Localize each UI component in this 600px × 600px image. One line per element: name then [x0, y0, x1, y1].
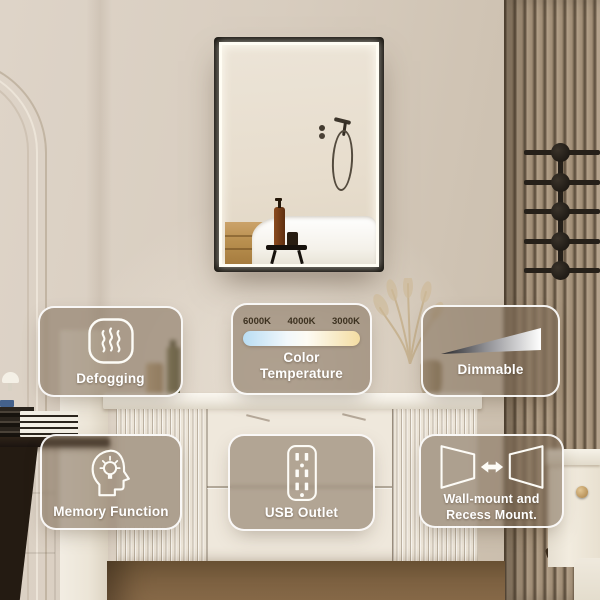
shower-mixer-knob — [319, 133, 325, 139]
towel-rack-knob — [551, 261, 570, 280]
brightness-wedge-icon — [441, 325, 541, 357]
tick-4000k: 4000K — [288, 316, 316, 327]
stool — [266, 245, 307, 250]
shower-hose-loop — [330, 129, 354, 191]
badge-label-line2: Recess Mount. — [446, 508, 537, 522]
towel-rack-knob — [551, 143, 570, 162]
blue-book — [0, 400, 14, 407]
shower-bracket — [334, 117, 351, 125]
soap-bottle — [274, 207, 285, 246]
product-scene: Defogging 6000K 4000K 3000K Color Temper… — [0, 0, 600, 600]
cabinet-seam — [392, 409, 394, 563]
tick-3000k: 3000K — [332, 316, 360, 327]
drawer-handle-notch — [246, 414, 270, 422]
head-with-lightbulb-icon — [82, 444, 140, 502]
double-arrow-icon — [480, 461, 502, 472]
badge-color-temperature: 6000K 4000K 3000K Color Temperature — [231, 303, 372, 395]
mirror-glass-led — [219, 42, 379, 267]
power-outlet-icon — [286, 444, 318, 502]
shower-mixer-knob — [319, 125, 325, 131]
table-lamp-base — [8, 383, 12, 391]
nightstand-knob — [576, 486, 588, 498]
tick-6000k: 6000K — [243, 316, 271, 327]
under-vanity-shadow — [107, 561, 505, 600]
badge-usb-outlet: USB Outlet — [228, 434, 375, 531]
badge-memory-function: Memory Function — [40, 434, 182, 530]
defogging-icon — [86, 316, 136, 366]
badge-label: USB Outlet — [265, 505, 338, 521]
towel-rack-knob — [551, 173, 570, 192]
drawer-handle-notch — [342, 413, 366, 421]
badge-defogging: Defogging — [38, 306, 183, 397]
mirror-cabinet — [214, 37, 384, 272]
badge-label-line1: Wall-mount and — [443, 492, 539, 506]
color-temp-ticks: 6000K 4000K 3000K — [243, 316, 360, 327]
badge-dimmable: Dimmable — [421, 305, 560, 397]
towel-rack-knob — [551, 202, 570, 221]
table-lamp — [2, 372, 19, 383]
soap-pump-spout — [275, 198, 282, 201]
towel-rack-knob — [551, 232, 570, 251]
badge-label: Memory Function — [53, 504, 169, 520]
badge-label: Color Temperature — [243, 350, 360, 381]
badge-label: Defogging — [76, 371, 145, 387]
two-mount-modes-icon — [433, 444, 551, 490]
color-temp-gradient-bar — [243, 331, 360, 346]
dark-jar — [287, 232, 298, 246]
floor-patch — [574, 558, 600, 600]
badge-label: Dimmable — [457, 362, 523, 378]
bathtub-reflection — [252, 216, 376, 264]
badge-mount-options: Wall-mount and Recess Mount. — [419, 434, 564, 528]
